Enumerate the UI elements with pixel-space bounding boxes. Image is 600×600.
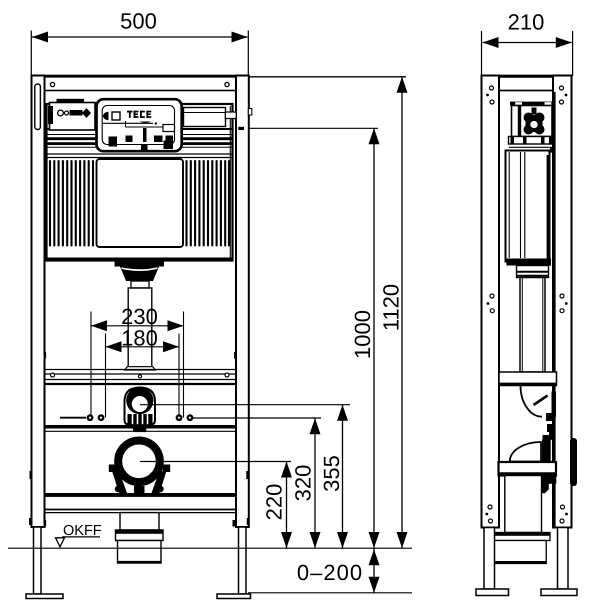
svg-text:1120: 1120 <box>379 284 404 331</box>
svg-text:1000: 1000 <box>350 310 375 359</box>
svg-text:220: 220 <box>262 484 287 521</box>
svg-text:500: 500 <box>120 9 157 34</box>
svg-text:0–200: 0–200 <box>297 560 363 585</box>
svg-text:210: 210 <box>508 10 545 35</box>
svg-text:355: 355 <box>319 455 344 492</box>
svg-text:320: 320 <box>291 465 316 502</box>
